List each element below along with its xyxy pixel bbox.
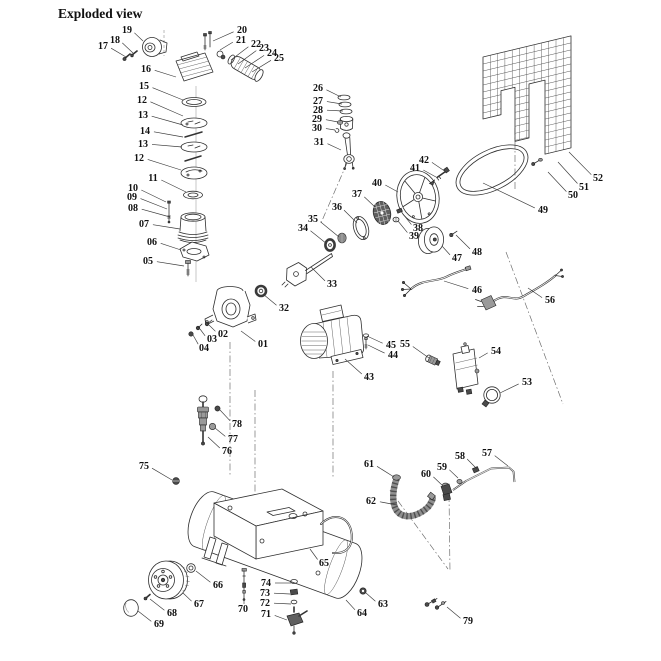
leader-line-01-0	[241, 331, 255, 342]
braided-hose-drawing	[393, 475, 436, 516]
part-label-61-62: 61	[364, 459, 374, 470]
part-label-74-75: 74	[261, 578, 271, 589]
part-label-34-35: 34	[298, 223, 308, 234]
pressure-switch-drawing	[453, 343, 479, 395]
part-label-17-18: 17	[98, 41, 108, 52]
part-label-68-69: 68	[167, 608, 177, 619]
leader-line-75-76	[152, 468, 172, 480]
cylinder-studs-drawing	[168, 201, 171, 223]
leader-line-68-69	[150, 599, 164, 610]
part-label-14-13: 14	[140, 126, 150, 137]
safety-valve-drawing	[173, 396, 220, 485]
leader-line-17-18	[111, 48, 126, 57]
leader-line-20-21	[213, 32, 234, 41]
part-label-54-55: 54	[491, 346, 501, 357]
leader-line-73-74	[274, 593, 290, 594]
part-label-50-51: 50	[568, 190, 578, 201]
leader-line-76-77	[208, 437, 220, 448]
part-label-53-54: 53	[522, 377, 532, 388]
leader-line-08-7	[142, 209, 170, 217]
part-label-58-59: 58	[455, 451, 465, 462]
leader-line-43-44	[345, 359, 362, 374]
part-label-59-60: 59	[437, 462, 447, 473]
leader-line-15-16	[153, 88, 184, 100]
air-filter-housing-drawing	[123, 38, 167, 61]
leader-line-35-36	[320, 222, 339, 237]
part-label-45-46: 45	[386, 340, 396, 351]
leader-line-34-35	[311, 231, 328, 244]
leader-line-40-41	[385, 185, 398, 192]
part-label-73-74: 73	[260, 588, 270, 599]
leader-line-02-1	[209, 325, 215, 331]
discharge-pipe-drawing	[441, 467, 515, 501]
leader-line-13-12	[152, 116, 183, 125]
leader-line-66-67	[196, 571, 210, 582]
part-label-79-80: 79	[463, 616, 473, 627]
leader-line-32-33	[263, 294, 277, 305]
part-label-75-76: 75	[139, 461, 149, 472]
flywheel-drawing	[393, 167, 444, 226]
part-label-39-40: 39	[409, 231, 419, 242]
leader-line-16-17	[155, 70, 176, 77]
part-label-11-10: 11	[148, 173, 157, 184]
part-label-42-43: 42	[419, 155, 429, 166]
leader-line-19-20	[134, 33, 143, 41]
leader-line-78-79	[220, 410, 230, 421]
leader-line-52-53	[569, 152, 591, 175]
valve-plate-stack-drawing	[181, 98, 207, 199]
leader-line-46-47	[444, 281, 468, 289]
part-label-04-3: 04	[199, 343, 209, 354]
leader-line-63-64	[366, 593, 375, 601]
leader-line-51-52	[558, 162, 578, 184]
part-label-76-77: 76	[222, 446, 232, 457]
part-label-64-65: 64	[357, 608, 367, 619]
leader-line-39-40	[398, 221, 407, 233]
flywheel-key-drawing	[393, 208, 402, 222]
exploded-view-page: Exploded view	[0, 0, 661, 661]
part-label-46-47: 46	[472, 285, 482, 296]
leader-line-05-4	[157, 262, 184, 266]
leader-line-72-73	[274, 603, 291, 604]
leader-line-21-22	[220, 42, 233, 50]
motor-drawing	[301, 305, 364, 365]
pulley-drawing	[418, 227, 457, 254]
tank-bolt-drawing	[242, 569, 246, 601]
part-label-33-34: 33	[327, 279, 337, 290]
head-bolts-drawing	[204, 32, 226, 60]
seal-plate-drawing	[350, 214, 371, 241]
fan-drawing	[371, 200, 393, 227]
part-label-65-66: 65	[319, 558, 329, 569]
leader-line-30-31	[326, 129, 335, 130]
leader-line-09-8	[141, 199, 168, 209]
part-label-66-67: 66	[213, 580, 223, 591]
leader-line-58-59	[467, 459, 477, 469]
leader-line-06-5	[161, 243, 181, 250]
leader-line-57-58	[495, 456, 508, 466]
leader-line-61-62	[377, 466, 394, 477]
leader-line-59-60	[449, 470, 458, 478]
part-label-31-32: 31	[314, 137, 324, 148]
part-label-16-17: 16	[141, 64, 151, 75]
piston-assembly-drawing	[335, 95, 354, 170]
part-label-78-79: 78	[232, 419, 242, 430]
leader-line-69-70	[138, 611, 151, 621]
part-label-55-56: 55	[400, 339, 410, 350]
part-label-69-70: 69	[154, 619, 164, 630]
belt-drawing	[448, 134, 536, 205]
tank-drawing	[181, 487, 368, 602]
leader-line-50-51	[548, 172, 566, 192]
part-label-12-15: 12	[134, 153, 144, 164]
part-label-08-7: 08	[128, 203, 138, 214]
base-gasket-drawing	[180, 242, 209, 276]
fitting-55-drawing	[425, 354, 441, 366]
part-label-51-52: 51	[579, 182, 589, 193]
leader-line-12-15	[148, 159, 181, 170]
part-label-02-1: 02	[218, 329, 228, 340]
leader-line-31-32	[328, 144, 342, 150]
diagram-canvas: 0102030405060708091011121314131215161718…	[0, 0, 661, 661]
part-label-13-14: 13	[138, 139, 148, 150]
leader-line-47-48	[442, 246, 450, 255]
leader-line-67-68	[183, 593, 192, 601]
part-label-71-72: 71	[261, 609, 271, 620]
flywheel-bolt-drawing	[430, 167, 450, 185]
leader-line-53-54	[500, 384, 519, 393]
part-label-30-31: 30	[312, 123, 322, 134]
leader-line-18-19	[122, 43, 133, 53]
cylinder-head-drawing	[176, 52, 213, 81]
leader-line-07-6	[153, 225, 180, 229]
leader-line-36-37	[344, 210, 357, 223]
part-label-56-57: 56	[545, 295, 555, 306]
part-label-48-49: 48	[472, 247, 482, 258]
part-label-52-53: 52	[593, 173, 603, 184]
leader-line-48-49	[456, 235, 470, 249]
part-label-18-19: 18	[110, 35, 120, 46]
part-label-10-9: 10	[128, 183, 138, 194]
part-label-19-20: 19	[122, 25, 132, 36]
part-label-77-78: 77	[228, 434, 238, 445]
part-label-01-0: 01	[258, 339, 268, 350]
belt-guard-drawing	[483, 36, 571, 169]
part-label-35-36: 35	[308, 214, 318, 225]
part-label-12-11: 12	[137, 95, 147, 106]
wheel-drawing	[124, 561, 196, 616]
part-label-72-73: 72	[260, 598, 270, 609]
leader-line-64-65	[346, 600, 355, 610]
leader-line-33-34	[311, 267, 325, 281]
guard-screw-drawing	[532, 158, 543, 165]
leader-line-77-78	[215, 428, 225, 436]
part-label-21-22: 21	[236, 35, 246, 46]
cylinder-drawing	[178, 213, 208, 243]
part-label-43-44: 43	[364, 372, 374, 383]
leader-line-45-46	[367, 336, 383, 343]
part-label-63-64: 63	[378, 599, 388, 610]
part-label-06-5: 06	[147, 237, 157, 248]
part-label-40-41: 40	[372, 178, 382, 189]
leader-line-03-2	[200, 329, 205, 336]
leader-line-54-55	[479, 353, 488, 358]
leader-line-14-13	[154, 132, 183, 137]
part-label-62-63: 62	[366, 496, 376, 507]
part-label-57-58: 57	[482, 448, 492, 459]
leader-line-44-45	[368, 345, 385, 353]
motor-leads-drawing	[401, 266, 471, 297]
part-label-70-71: 70	[238, 604, 248, 615]
part-label-36-37: 36	[332, 202, 342, 213]
leader-line-13-14	[152, 144, 182, 147]
crankshaft-drawing	[282, 254, 333, 288]
leader-line-29-30	[326, 120, 338, 122]
part-label-05-4: 05	[143, 256, 153, 267]
part-label-07-6: 07	[139, 219, 149, 230]
part-label-44-45: 44	[388, 350, 398, 361]
leader-line-11-10	[161, 180, 186, 192]
bearing-32-drawing	[256, 286, 266, 296]
part-label-67-68: 67	[194, 599, 204, 610]
part-label-25-26: 25	[274, 53, 284, 64]
part-label-49-50: 49	[538, 205, 548, 216]
leader-line-04-3	[193, 335, 198, 344]
leader-line-42-43	[432, 162, 446, 172]
leader-line-79-80	[447, 607, 461, 618]
part-label-32-33: 32	[279, 303, 289, 314]
drain-valve-drawing	[287, 580, 307, 635]
pressure-gauge-drawing	[482, 387, 500, 407]
part-label-13-12: 13	[138, 110, 148, 121]
leader-line-26-27	[326, 90, 341, 97]
leader-line-37-38	[364, 197, 375, 207]
part-label-15-16: 15	[139, 81, 149, 92]
leader-line-60-61	[433, 477, 443, 486]
part-label-60-61: 60	[421, 469, 431, 480]
leader-line-49-50	[483, 183, 535, 208]
part-label-26-27: 26	[313, 83, 323, 94]
leader-line-55-56	[413, 347, 429, 359]
part-label-37-38: 37	[352, 189, 362, 200]
mounting-bolts-drawing	[425, 599, 446, 610]
leader-line-71-72	[275, 615, 287, 620]
part-label-47-48: 47	[452, 253, 462, 264]
leader-line-12-11	[150, 102, 183, 116]
crank-bearing-drawing	[325, 233, 346, 251]
